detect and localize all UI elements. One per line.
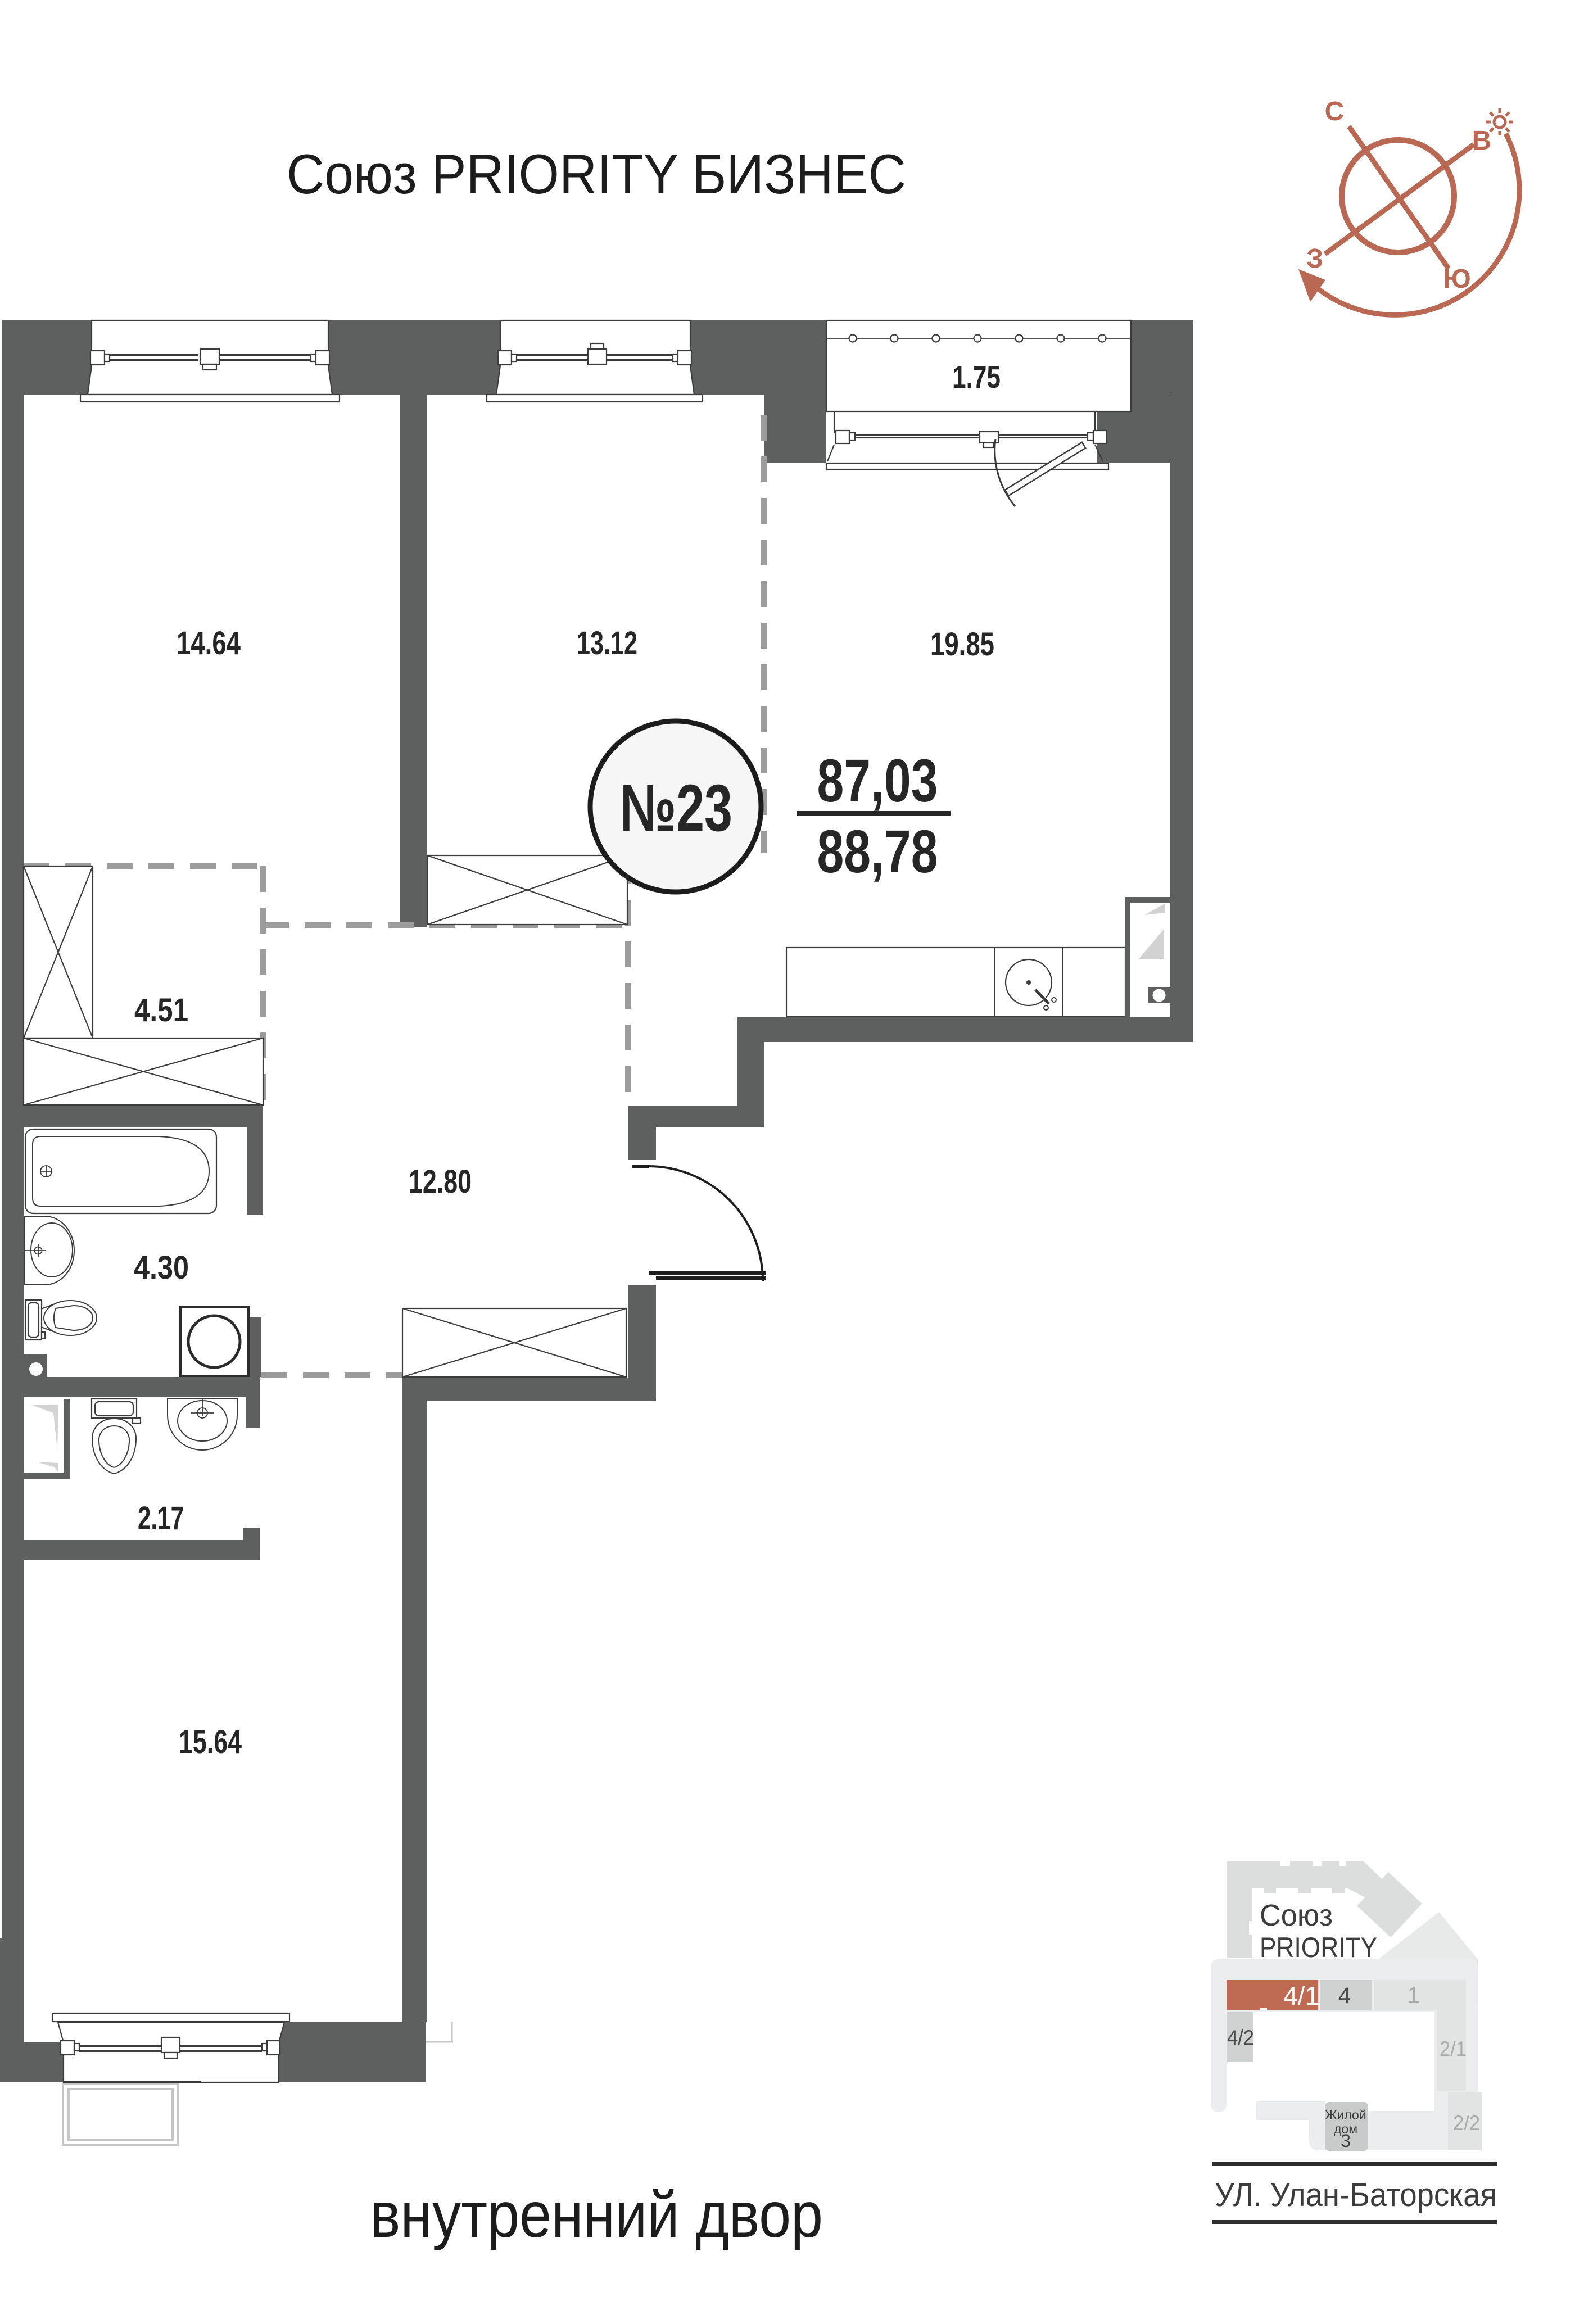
svg-text:Союз: Союз [1260,1899,1333,1932]
svg-text:З: З [1306,244,1323,274]
svg-text:12.80: 12.80 [409,1163,472,1200]
svg-text:1: 1 [1408,1983,1420,2008]
svg-text:4: 4 [1338,1983,1351,2008]
svg-text:С: С [1325,97,1345,126]
svg-text:Ю: Ю [1443,264,1471,294]
svg-text:14.64: 14.64 [177,625,241,662]
svg-text:2.17: 2.17 [138,1500,184,1537]
svg-text:4.30: 4.30 [134,1249,189,1286]
svg-text:№23: №23 [620,771,732,845]
svg-text:УЛ. Улан-Баторская: УЛ. Улан-Баторская [1215,2177,1497,2213]
svg-text:В: В [1472,126,1492,156]
svg-text:2/2: 2/2 [1453,2112,1480,2135]
svg-text:4/2: 4/2 [1227,2026,1254,2049]
svg-text:4/1: 4/1 [1283,1981,1319,2010]
svg-text:Жилой: Жилой [1325,2108,1366,2122]
svg-text:Союз PRIORITY БИЗНЕС: Союз PRIORITY БИЗНЕС [287,143,906,205]
svg-text:19.85: 19.85 [930,626,994,663]
svg-text:88,78: 88,78 [817,817,938,885]
svg-text:PRIORITY: PRIORITY [1260,1932,1377,1963]
svg-text:4.51: 4.51 [134,992,188,1029]
svg-text:1.75: 1.75 [952,359,1001,395]
svg-text:внутренний двор: внутренний двор [370,2179,823,2251]
svg-text:13.12: 13.12 [577,625,637,662]
svg-text:87,03: 87,03 [817,746,938,814]
svg-text:3: 3 [1341,2131,1351,2151]
svg-text:2/1: 2/1 [1440,2037,1467,2060]
svg-text:15.64: 15.64 [179,1724,242,1760]
